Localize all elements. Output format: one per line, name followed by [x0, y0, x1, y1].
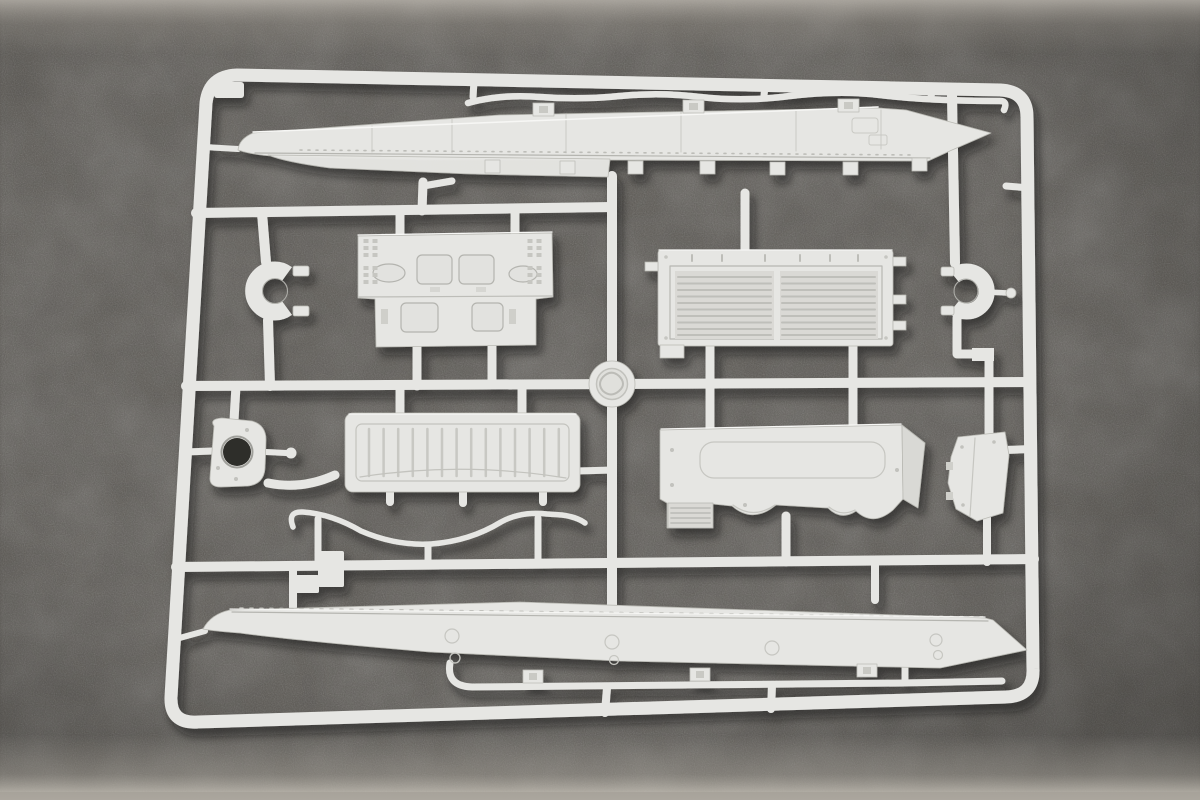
- side-bracket-right: [946, 432, 1009, 521]
- table-edge-strip: [0, 792, 1200, 800]
- surface-edge-top: [0, 0, 1200, 54]
- ribbed-rear-door: [345, 413, 580, 492]
- center-hub-disc: [589, 361, 635, 407]
- sprue-photograph: [0, 0, 1200, 800]
- surface-edge-bottom: [0, 735, 1200, 800]
- engine-grille-deck: [645, 250, 906, 358]
- mount-plate-left: [210, 418, 266, 487]
- frame-corner-tab: [214, 82, 244, 98]
- crew-deck-plate: [358, 232, 553, 347]
